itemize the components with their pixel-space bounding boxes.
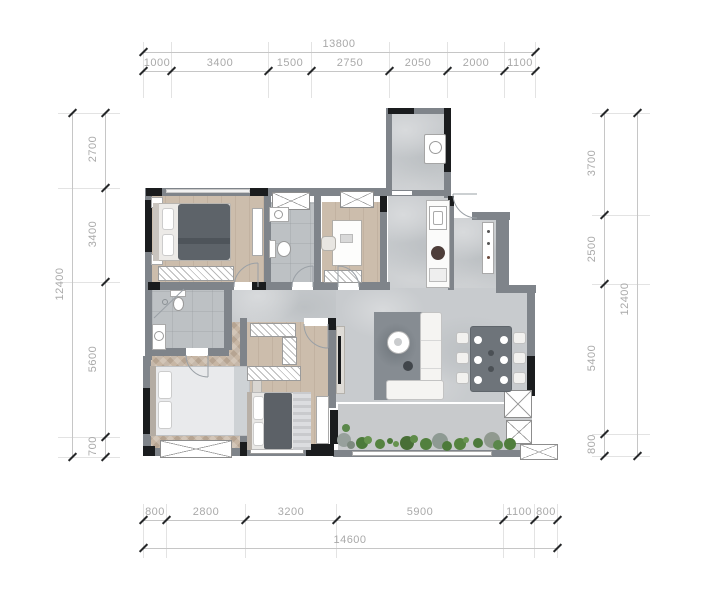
plant-icon (337, 424, 516, 451)
shower-icon (154, 289, 184, 318)
floor-plan: 13800 1000 3400 1500 2750 2050 2000 1100… (0, 0, 704, 600)
door-swing-icon (186, 194, 477, 377)
plan-overlay (0, 0, 704, 600)
